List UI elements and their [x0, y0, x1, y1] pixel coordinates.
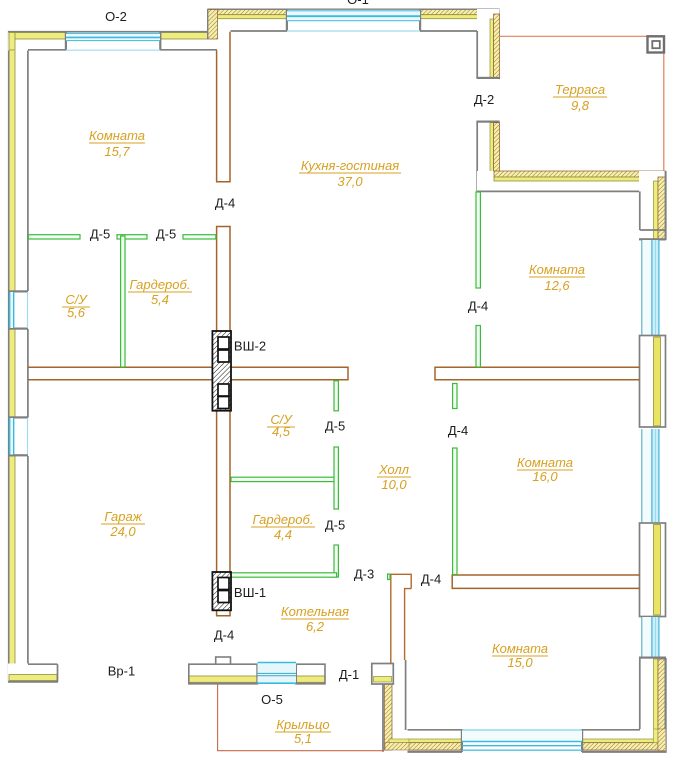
svg-text:Крыльцо: Крыльцо: [276, 717, 329, 732]
svg-text:Д-4: Д-4: [421, 572, 441, 587]
svg-text:О-1: О-1: [347, 0, 369, 7]
svg-text:15,0: 15,0: [507, 655, 533, 670]
svg-text:4,4: 4,4: [274, 527, 292, 542]
svg-text:Гараж: Гараж: [104, 509, 142, 524]
svg-text:ВШ-1: ВШ-1: [234, 585, 266, 600]
svg-text:37,0: 37,0: [337, 174, 363, 189]
svg-text:Терраса: Терраса: [555, 82, 605, 97]
svg-text:О-5: О-5: [261, 692, 283, 707]
svg-text:Д-5: Д-5: [325, 419, 345, 434]
svg-text:6,2: 6,2: [306, 619, 325, 634]
svg-text:Д-3: Д-3: [354, 567, 374, 582]
svg-text:О-2: О-2: [105, 9, 127, 24]
svg-text:24,0: 24,0: [109, 524, 136, 539]
svg-text:Комната: Комната: [89, 128, 145, 143]
svg-text:Холл: Холл: [378, 462, 410, 477]
svg-text:Гардероб.: Гардероб.: [130, 277, 191, 292]
svg-text:Д-2: Д-2: [474, 92, 494, 107]
svg-text:Вр-1: Вр-1: [108, 664, 135, 679]
svg-text:15,7: 15,7: [104, 144, 130, 159]
svg-text:9,8: 9,8: [571, 98, 590, 113]
svg-text:ВШ-2: ВШ-2: [234, 339, 266, 354]
svg-text:5,1: 5,1: [294, 731, 312, 746]
svg-text:10,0: 10,0: [381, 477, 407, 492]
svg-text:5,4: 5,4: [151, 292, 169, 307]
svg-text:12,6: 12,6: [544, 278, 570, 293]
svg-text:Комната: Комната: [492, 641, 548, 656]
svg-text:Комната: Комната: [517, 455, 573, 470]
svg-text:5,6: 5,6: [67, 305, 86, 320]
svg-text:Д-4: Д-4: [448, 423, 468, 438]
svg-text:Котельная: Котельная: [281, 604, 349, 619]
svg-text:Д-4: Д-4: [215, 196, 235, 211]
svg-text:16,0: 16,0: [532, 469, 558, 484]
svg-text:Д-5: Д-5: [90, 227, 110, 242]
svg-text:Комната: Комната: [529, 262, 585, 277]
svg-text:Д-5: Д-5: [325, 518, 345, 533]
svg-text:Д-4: Д-4: [214, 628, 234, 643]
svg-text:Д-5: Д-5: [156, 227, 176, 242]
svg-text:Гардероб.: Гардероб.: [253, 512, 314, 527]
svg-text:Д-4: Д-4: [468, 299, 488, 314]
svg-text:4,5: 4,5: [272, 424, 291, 439]
svg-text:Кухня-гостиная: Кухня-гостиная: [301, 158, 399, 173]
svg-text:Д-1: Д-1: [339, 667, 359, 682]
